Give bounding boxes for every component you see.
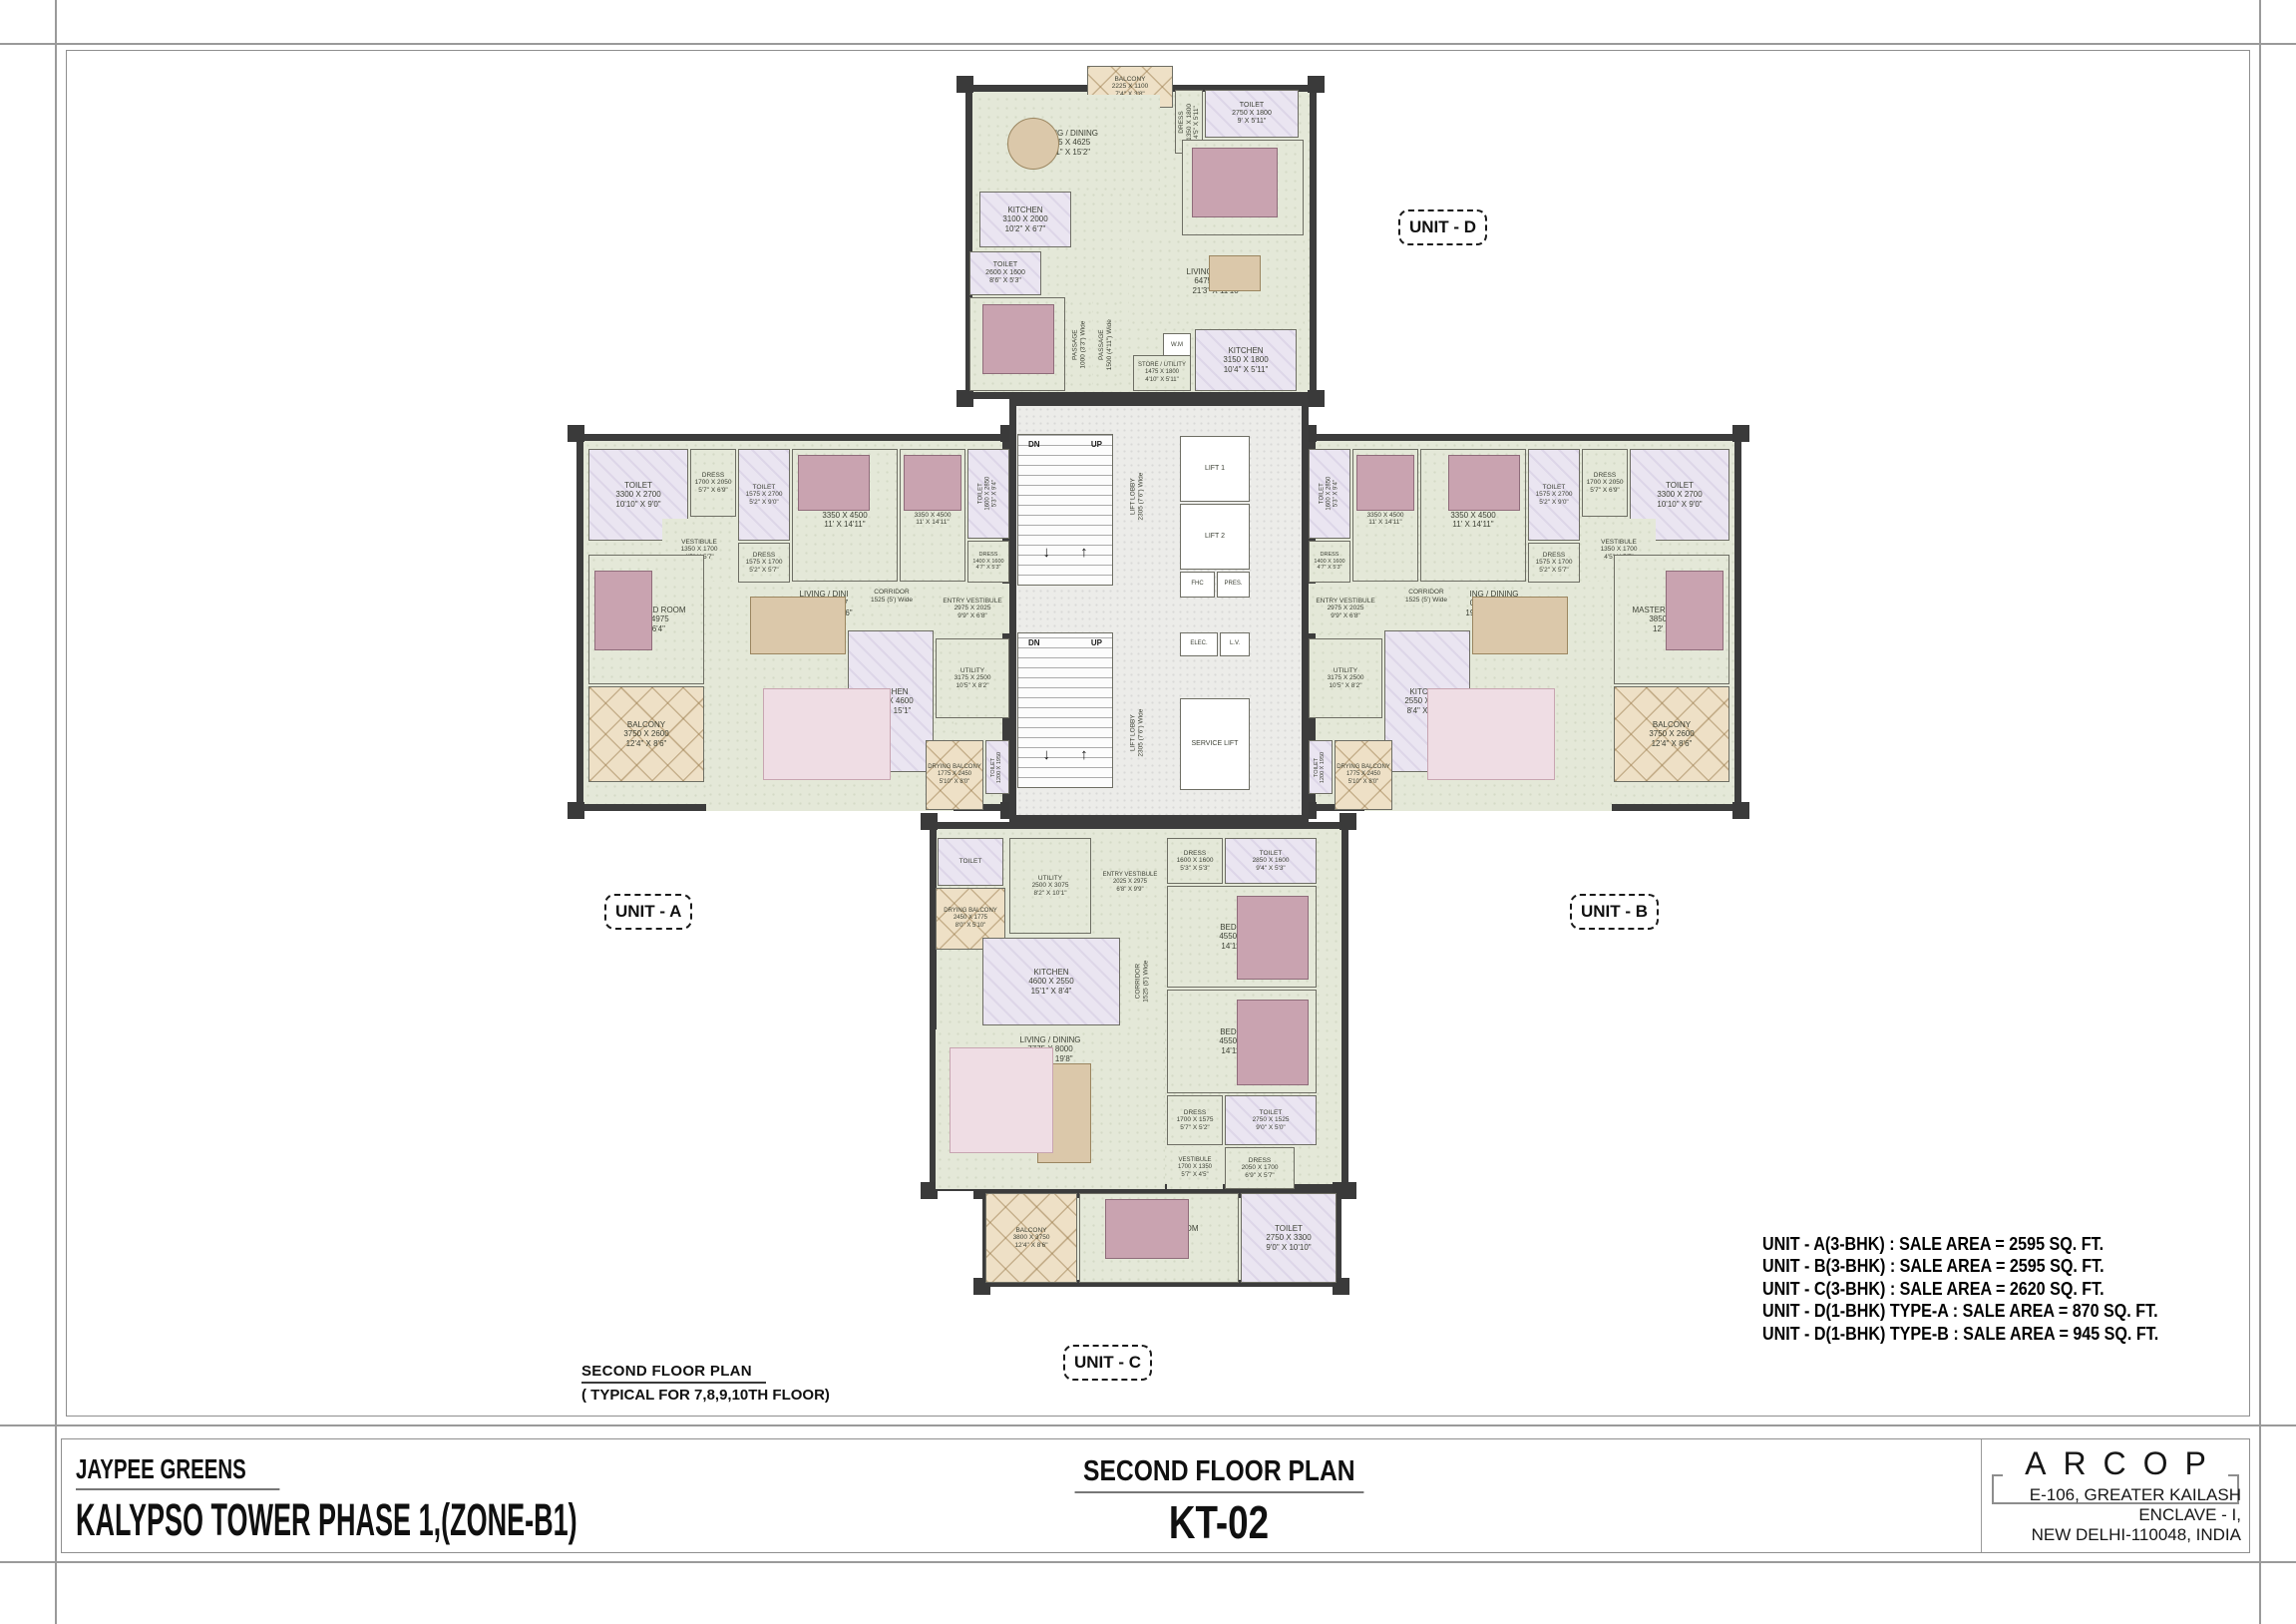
- room-label: TOILET2850 X 16009'4" X 5'3": [1253, 850, 1290, 873]
- stair-arrow-icon: ↑: [1080, 746, 1088, 763]
- stair-arrow-icon: ↓: [1042, 746, 1050, 763]
- wall-pier: [568, 802, 584, 819]
- furniture-bed: [982, 304, 1054, 374]
- room-corridor: CORRIDOR1525 (5') Wide: [1382, 584, 1470, 609]
- furniture-wood: [1472, 597, 1568, 654]
- trim-line-bottom: [0, 1424, 2296, 1426]
- room-kitchen: KITCHEN4600 X 255015'1" X 8'4": [982, 938, 1120, 1025]
- room-label: DRYING BALCONY2450 X 17758'0" X 5'10": [944, 908, 997, 929]
- architect-address: E-106, GREATER KAILASH ENCLAVE - I, NEW …: [1982, 1485, 2241, 1545]
- furniture-bed: [1666, 571, 1723, 650]
- room-l-v: L.V.: [1220, 632, 1250, 656]
- room-toilet: TOILET1575 X 27005'2" X 9'0": [738, 449, 790, 541]
- room-label: KITCHEN3100 X 200010'2" X 6'7": [1002, 205, 1047, 233]
- room-balcony: BALCONY3750 X 260012'4" X 8'6": [1614, 686, 1729, 782]
- room-label: UTILITY2500 X 30758'2" X 10'1": [1032, 875, 1069, 898]
- room-label: VESTIBULE1700 X 13505'7" X 4'5": [1178, 1157, 1212, 1178]
- room-label: TOILET2600 X 16008'6" X 5'3": [985, 261, 1025, 286]
- title-block: JAYPEE GREENS KALYPSO TOWER PHASE 1,(ZON…: [61, 1438, 2250, 1553]
- room-room: DNUP↓↑: [1017, 434, 1113, 586]
- room-label: DRESS1400 X 16004'7" X 5'3": [1314, 552, 1344, 571]
- room-toilet: TOILET1600 X 28505'3" X 9'4": [1309, 449, 1350, 539]
- room-label: TOILET3300 X 270010'10" X 9'0": [1657, 481, 1702, 509]
- room-label: UTILITY3175 X 250010'5" X 8'2": [955, 667, 991, 690]
- furniture-bed: [594, 571, 652, 650]
- furniture-bed: [1448, 455, 1520, 511]
- room-label: CORRIDOR1525 (5') Wide: [871, 589, 913, 604]
- wall-pier: [568, 425, 584, 442]
- unit-area-a: UNIT - A(3-BHK) : SALE AREA = 2595 SQ. F…: [1762, 1233, 2158, 1255]
- tower-title: KALYPSO TOWER PHASE 1,(ZONE-B1): [76, 1494, 577, 1546]
- room-store-utility: STORE / UTILITY1475 X 18004'10" X 5'11": [1133, 355, 1191, 391]
- room-toilet: TOILET2750 X 18009' X 5'11": [1205, 90, 1299, 138]
- room-label: CORRIDOR1525 (5') Wide: [1405, 589, 1447, 604]
- room-label: TOILET1200 X 1950: [1315, 751, 1328, 782]
- room-label: TOILET1575 X 27005'2" X 9'0": [746, 484, 783, 507]
- room-label: KITCHEN4600 X 255015'1" X 8'4": [1028, 968, 1073, 996]
- stair-direction-label: DN: [1028, 440, 1040, 449]
- room-toilet: TOILET2600 X 16008'6" X 5'3": [969, 251, 1041, 295]
- plan-note-subtitle: ( TYPICAL FOR 7,8,9,10TH FLOOR): [581, 1387, 830, 1404]
- wall-pier: [1732, 802, 1749, 819]
- wall-pier: [1308, 390, 1325, 407]
- room-toilet: TOILET: [938, 838, 1003, 886]
- furniture-wood: [1209, 255, 1261, 291]
- room-label: SERVICE LIFT: [1192, 740, 1239, 748]
- room-kitchen: KITCHEN3150 X 180010'4" X 5'11": [1195, 329, 1297, 391]
- room-pres: PRES.: [1217, 572, 1250, 598]
- furniture-rug: [763, 688, 891, 780]
- room-label: TOILET1575 X 27005'2" X 9'0": [1536, 484, 1573, 507]
- trim-line-top: [0, 43, 2296, 45]
- furniture-bed: [1356, 455, 1414, 511]
- room-toilet: TOILET1200 X 1950: [985, 740, 1009, 794]
- drawing-title: SECOND FLOOR PLAN: [1074, 1455, 1363, 1493]
- room-label: DRESS1400 X 16004'7" X 5'3": [972, 552, 1003, 571]
- wall-pier: [921, 813, 938, 830]
- room-dress: DRESS1400 X 16004'7" X 5'3": [1309, 541, 1350, 583]
- room-label: LIFT LOBBY2305 (7'6") Wide: [1129, 473, 1144, 521]
- room-toilet: TOILET2750 X 15259'0" X 5'0": [1225, 1095, 1317, 1145]
- room-label: ELEC.: [1190, 640, 1207, 647]
- room-service-lift: SERVICE LIFT: [1180, 698, 1250, 790]
- room-label: DRESS2050 X 17006'9" X 5'7": [1242, 1157, 1279, 1180]
- room-corridor: CORRIDOR1525 (5') Wide: [848, 584, 936, 609]
- stair-arrow-icon: ↓: [1042, 544, 1050, 561]
- unit-label-unit-b: UNIT - B: [1570, 894, 1659, 930]
- wall-pier: [957, 390, 973, 407]
- room-label: TOILET2750 X 33009'0" X 10'10": [1266, 1224, 1311, 1252]
- room-label: FHC: [1191, 581, 1203, 588]
- drawing-number: KT-02: [1051, 1495, 1386, 1549]
- room-dress: DRESS2050 X 17006'9" X 5'7": [1225, 1147, 1295, 1189]
- furniture-bed: [904, 455, 961, 511]
- room-room: DNUP↓↑: [1017, 632, 1113, 788]
- furniture-rug: [950, 1047, 1053, 1153]
- room-passage: PASSAGE1500 (4'11") Wide: [1093, 299, 1119, 391]
- room-dress: DRESS1575 X 17005'2" X 5'7": [1528, 543, 1580, 583]
- room-label: KITCHEN3150 X 180010'4" X 5'11": [1223, 346, 1268, 374]
- trim-line-right: [2259, 0, 2261, 1624]
- room-entry-vestibule: ENTRY VESTIBULE2025 X 29756'8" X 9'9": [1097, 838, 1163, 928]
- furniture-wood: [1007, 118, 1059, 170]
- room-label: BALCONY3800 X 375012'4" X 8'6": [1013, 1227, 1050, 1250]
- unit-area-c: UNIT - C(3-BHK) : SALE AREA = 2620 SQ. F…: [1762, 1278, 2158, 1300]
- room-dress: DRESS1700 X 15755'7" X 5'2": [1167, 1095, 1223, 1145]
- wall-pier: [957, 76, 973, 93]
- room-label: UTILITY3175 X 250010'5" X 8'2": [1328, 667, 1364, 690]
- room-dress: DRESS1700 X 20505'7" X 6'9": [1582, 449, 1628, 517]
- room-label: DRYING BALCONY1775 X 24505'10" X 8'0": [1337, 764, 1390, 785]
- room-utility: UTILITY3175 X 250010'5" X 8'2": [1309, 638, 1382, 718]
- drawing-sheet: SECOND FLOOR PLAN ( TYPICAL FOR 7,8,9,10…: [0, 0, 2296, 1624]
- room-label: TOILET1600 X 28505'3" X 9'4": [977, 477, 998, 511]
- room-lift-lobby: LIFT LOBBY2305 (7'6") Wide: [1123, 683, 1151, 783]
- wall-pier: [1308, 76, 1325, 93]
- room-label: LIFT LOBBY2305 (7'6") Wide: [1129, 709, 1144, 757]
- stair-direction-label: UP: [1091, 638, 1102, 647]
- room-dress: DRESS1575 X 17005'2" X 5'7": [738, 543, 790, 583]
- unit-label-unit-a: UNIT - A: [604, 894, 692, 930]
- room-label: TOILET1600 X 28505'3" X 9'4": [1319, 477, 1339, 511]
- room-label: BALCONY3750 X 260012'4" X 8'6": [623, 720, 668, 748]
- room-label: DRYING BALCONY1775 X 24505'10" X 8'0": [928, 764, 981, 785]
- room-vestibule: VESTIBULE1700 X 13505'7" X 4'5": [1167, 1147, 1223, 1189]
- room-utility: UTILITY3175 X 250010'5" X 8'2": [936, 638, 1009, 718]
- room-label: DRESS1700 X 15755'7" X 5'2": [1177, 1109, 1214, 1132]
- room-label: DRESS1575 X 17005'2" X 5'7": [746, 552, 783, 575]
- room-label: LIFT 1: [1205, 465, 1225, 473]
- room-label: PASSAGE1500 (4'11") Wide: [1098, 319, 1113, 370]
- room-label: ENTRY VESTIBULE2975 X 20259'9" X 6'8": [943, 598, 1001, 620]
- room-label: DRESS1350 X 18004'5" X 5'11": [1178, 104, 1201, 141]
- room-toilet: TOILET2850 X 16009'4" X 5'3": [1225, 838, 1317, 884]
- plan-note: SECOND FLOOR PLAN ( TYPICAL FOR 7,8,9,10…: [581, 1363, 830, 1404]
- room-dress: DRESS1700 X 20505'7" X 6'9": [690, 449, 736, 517]
- room-label: W.M: [1171, 342, 1183, 349]
- unit-area-b: UNIT - B(3-BHK) : SALE AREA = 2595 SQ. F…: [1762, 1255, 2158, 1277]
- stair-direction-label: UP: [1091, 440, 1102, 449]
- trim-line-footer: [0, 1561, 2296, 1563]
- room-label: STORE / UTILITY1475 X 18004'10" X 5'11": [1138, 362, 1186, 383]
- unit-area-d-type-b: UNIT - D(1-BHK) TYPE-B : SALE AREA = 945…: [1762, 1323, 2158, 1345]
- plan-note-title: SECOND FLOOR PLAN: [581, 1363, 766, 1384]
- unit-area-d-type-a: UNIT - D(1-BHK) TYPE-A : SALE AREA = 870…: [1762, 1300, 2158, 1322]
- furniture-rug: [1427, 688, 1555, 780]
- room-label: DRESS1575 X 17005'2" X 5'7": [1536, 552, 1573, 575]
- room-corridor: CORRIDOR1525 (5') Wide: [1125, 934, 1159, 1029]
- furniture-bed: [1237, 1000, 1309, 1085]
- room-label: DRESS1700 X 20505'7" X 6'9": [1587, 472, 1624, 495]
- room-label: TOILET2750 X 18009' X 5'11": [1232, 102, 1272, 127]
- room-entry-vestibule: ENTRY VESTIBULE2975 X 20259'9" X 6'8": [1309, 584, 1382, 633]
- room-elec: ELEC.: [1180, 632, 1218, 656]
- room-drying-balcony: DRYING BALCONY1775 X 24505'10" X 8'0": [926, 740, 983, 810]
- room-label: CORRIDOR1525 (5') Wide: [1134, 961, 1149, 1003]
- room-label: TOILET3300 X 270010'10" X 9'0": [615, 481, 660, 509]
- room-label: DRESS1600 X 16005'3" X 5'3": [1177, 850, 1214, 873]
- room-toilet: TOILET1575 X 27005'2" X 9'0": [1528, 449, 1580, 541]
- furniture-wood: [750, 597, 846, 654]
- furniture-bed: [1192, 148, 1278, 217]
- furniture-bed: [798, 455, 870, 511]
- room-lift-lobby: LIFT LOBBY2305 (7'6") Wide: [1123, 447, 1151, 547]
- project-title: JAYPEE GREENS: [76, 1453, 279, 1490]
- room-label: TOILET: [959, 858, 982, 866]
- room-lift-1: LIFT 1: [1180, 436, 1250, 502]
- unit-label-unit-d: UNIT - D: [1398, 209, 1487, 245]
- trim-line-left: [55, 0, 57, 1624]
- room-balcony: BALCONY3750 X 260012'4" X 8'6": [588, 686, 704, 782]
- room-label: TOILET2750 X 15259'0" X 5'0": [1253, 1109, 1290, 1132]
- stair-arrow-icon: ↑: [1080, 544, 1088, 561]
- room-drying-balcony: DRYING BALCONY1775 X 24505'10" X 8'0": [1335, 740, 1392, 810]
- title-block-center: SECOND FLOOR PLAN KT-02: [1009, 1455, 1428, 1549]
- room-toilet: TOILET1200 X 1950: [1309, 740, 1333, 794]
- room-label: DRESS1700 X 20505'7" X 6'9": [695, 472, 732, 495]
- room-utility: UTILITY2500 X 30758'2" X 10'1": [1009, 838, 1091, 934]
- room-label: TOILET1200 X 1950: [991, 751, 1004, 782]
- room-label: BALCONY3750 X 260012'4" X 8'6": [1649, 720, 1694, 748]
- room-label: ENTRY VESTIBULE2025 X 29756'8" X 9'9": [1103, 872, 1158, 893]
- room-dress: DRESS1400 X 16004'7" X 5'3": [967, 541, 1009, 583]
- unit-areas-list: UNIT - A(3-BHK) : SALE AREA = 2595 SQ. F…: [1762, 1233, 2218, 1345]
- room-label: PASSAGE1000 (3'3") Wide: [1071, 321, 1086, 369]
- room-balcony: BALCONY3800 X 375012'4" X 8'6": [985, 1193, 1077, 1283]
- title-block-left: JAYPEE GREENS KALYPSO TOWER PHASE 1,(ZON…: [76, 1453, 912, 1546]
- room-toilet: TOILET1600 X 28505'3" X 9'4": [967, 449, 1009, 539]
- furniture-bed: [1237, 896, 1309, 980]
- room-kitchen: KITCHEN3100 X 200010'2" X 6'7": [979, 192, 1071, 247]
- room-living-dining: LIVING / DINING6425 X 462521'1" X 15'2": [975, 95, 1160, 191]
- unit-label-unit-c: UNIT - C: [1063, 1345, 1152, 1381]
- room-label: PRES.: [1224, 581, 1242, 588]
- room-passage: PASSAGE1000 (3'3") Wide: [1067, 299, 1091, 391]
- stair-direction-label: DN: [1028, 638, 1040, 647]
- room-fhc: FHC: [1180, 572, 1215, 598]
- room-label: LIFT 2: [1205, 533, 1225, 541]
- room-label: ENTRY VESTIBULE2975 X 20259'9" X 6'8": [1316, 598, 1374, 620]
- wall-pier: [1732, 425, 1749, 442]
- room-toilet: TOILET2750 X 33009'0" X 10'10": [1241, 1193, 1337, 1283]
- room-entry-vestibule: ENTRY VESTIBULE2975 X 20259'9" X 6'8": [936, 584, 1009, 633]
- room-lift-2: LIFT 2: [1180, 504, 1250, 570]
- room-label: L.V.: [1230, 640, 1240, 647]
- wall-pier: [1339, 813, 1356, 830]
- architect-block: ARCOP E-106, GREATER KAILASH ENCLAVE - I…: [1981, 1439, 2249, 1552]
- furniture-bed: [1105, 1199, 1189, 1259]
- room-dress: DRESS1600 X 16005'3" X 5'3": [1167, 838, 1223, 884]
